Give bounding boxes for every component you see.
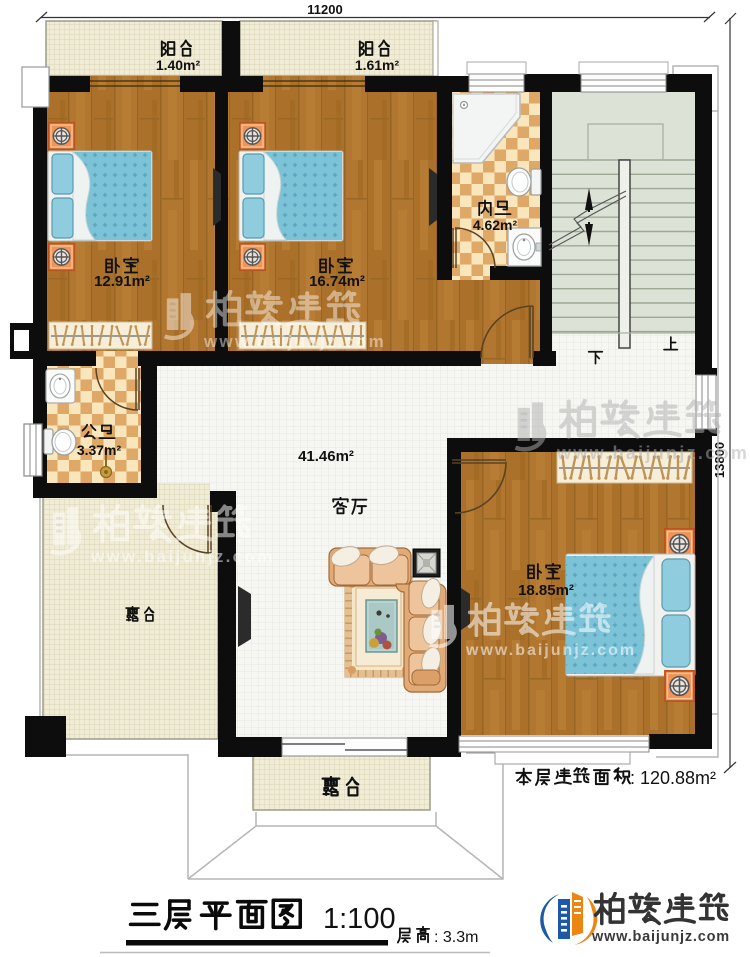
svg-text:12.91m²: 12.91m² xyxy=(94,273,150,290)
svg-text:4.62m²: 4.62m² xyxy=(473,217,518,233)
svg-text:1.61m²: 1.61m² xyxy=(355,57,400,73)
svg-text:11200: 11200 xyxy=(307,2,342,17)
svg-text:www.baijunjz.com: www.baijunjz.com xyxy=(203,332,386,351)
svg-text:www.baijunjz.com: www.baijunjz.com xyxy=(90,547,275,566)
svg-text:41.46m²: 41.46m² xyxy=(298,448,354,465)
svg-text:16.74m²: 16.74m² xyxy=(309,273,365,290)
svg-text:: 3.3m: : 3.3m xyxy=(434,929,478,946)
svg-text:www.baijunjz.com: www.baijunjz.com xyxy=(465,642,636,659)
svg-text:: 120.88m²: : 120.88m² xyxy=(630,768,716,788)
svg-text:www.baijunjz.com: www.baijunjz.com xyxy=(591,929,730,945)
svg-text:3.37m²: 3.37m² xyxy=(77,442,122,458)
svg-text:18.85m²: 18.85m² xyxy=(518,582,574,599)
svg-text:www.baijunjz.com: www.baijunjz.com xyxy=(556,443,749,463)
svg-text:1.40m²: 1.40m² xyxy=(156,57,201,73)
svg-text:1:100: 1:100 xyxy=(323,903,396,935)
